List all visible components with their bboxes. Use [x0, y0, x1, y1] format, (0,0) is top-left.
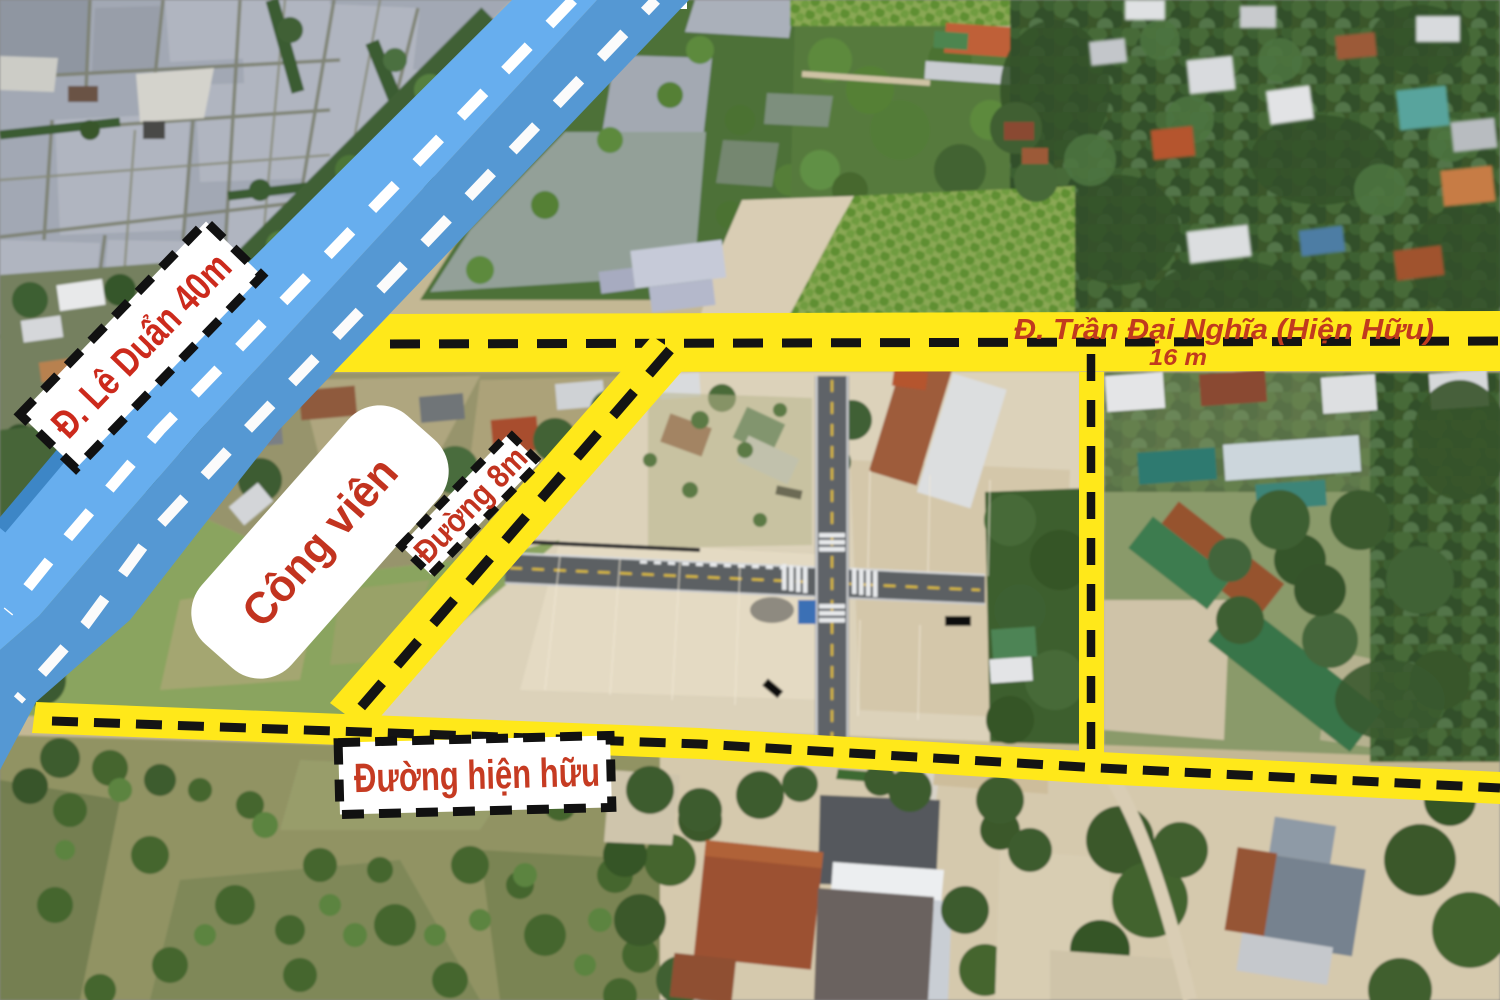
svg-text:Đường hiện hữu: Đường hiện hữu [353, 749, 600, 801]
svg-text:Đ. Trần Đại Nghĩa (Hiện Hữu): Đ. Trần Đại Nghĩa (Hiện Hữu) [1014, 314, 1434, 346]
svg-text:16 m: 16 m [1149, 344, 1207, 370]
